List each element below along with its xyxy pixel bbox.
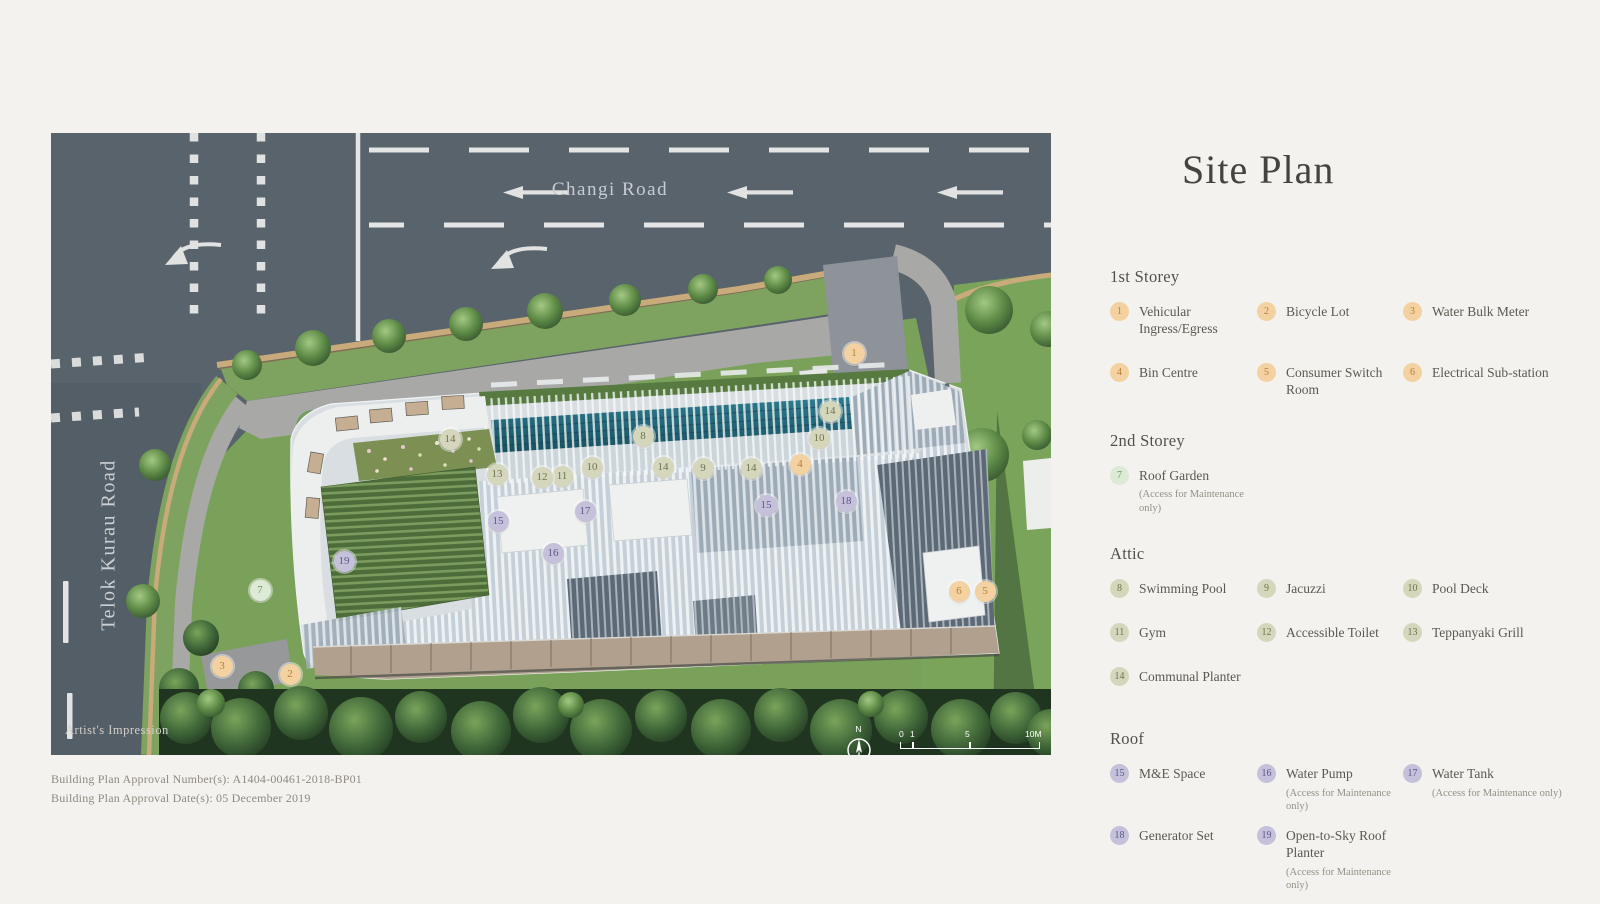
legend-item-label: Communal Planter — [1139, 667, 1241, 686]
legend-item-label: Swimming Pool — [1139, 579, 1226, 598]
plan-marker-11: 11 — [552, 466, 573, 487]
legend-section-1st-storey: 1st Storey1Vehicular Ingress/Egress2Bicy… — [1110, 267, 1585, 399]
legend-item-label: Jacuzzi — [1286, 579, 1326, 598]
legend-item-15: 15M&E Space — [1110, 764, 1257, 783]
legend-marker-7: 7 — [1110, 466, 1129, 485]
legend-item-label: Gym — [1139, 623, 1166, 642]
site-plan-page: 123456789101011121314141414151516171819 … — [0, 0, 1600, 904]
plan-marker-3: 3 — [212, 656, 233, 677]
plan-marker-5: 5 — [975, 581, 996, 602]
legend-marker-12: 12 — [1257, 623, 1276, 642]
legend-item-5: 5Consumer Switch Room — [1257, 363, 1403, 399]
site-plan-rendering: 123456789101011121314141414151516171819 … — [51, 133, 1051, 755]
legend-marker-11: 11 — [1110, 623, 1129, 642]
approval-number: Building Plan Approval Number(s): A1404-… — [51, 770, 362, 789]
plan-marker-18: 18 — [836, 491, 857, 512]
north-compass-icon: N — [845, 719, 873, 755]
plan-marker-4: 4 — [790, 454, 811, 475]
plan-marker-13: 13 — [487, 464, 508, 485]
plan-marker-9: 9 — [693, 458, 714, 479]
scale-bar: 0 1 5 10M — [899, 729, 1049, 753]
legend-panel: Site Plan 1st Storey1Vehicular Ingress/E… — [1110, 146, 1585, 892]
plan-marker-16: 16 — [543, 543, 564, 564]
legend-item-label: Bicycle Lot — [1286, 302, 1349, 321]
legend-item-label: Water Tank(Access for Maintenance only) — [1432, 764, 1562, 800]
legend-item-1: 1Vehicular Ingress/Egress — [1110, 302, 1257, 338]
plan-marker-15: 15 — [488, 511, 509, 532]
legend-marker-15: 15 — [1110, 764, 1129, 783]
legend-marker-3: 3 — [1403, 302, 1422, 321]
legend-section-title: 1st Storey — [1110, 267, 1585, 287]
plan-marker-17: 17 — [575, 501, 596, 522]
plan-marker-14: 14 — [820, 401, 841, 422]
legend-item-label: Consumer Switch Room — [1286, 363, 1403, 399]
legend-marker-9: 9 — [1257, 579, 1276, 598]
legend-item-3: 3Water Bulk Meter — [1403, 302, 1585, 321]
plan-marker-6: 6 — [949, 581, 970, 602]
legend-item-9: 9Jacuzzi — [1257, 579, 1403, 598]
changi-road-label: Changi Road — [552, 179, 668, 201]
legend-item-11: 11Gym — [1110, 623, 1257, 642]
legend-marker-18: 18 — [1110, 826, 1129, 845]
plan-marker-10: 10 — [582, 457, 603, 478]
legend-item-label: Vehicular Ingress/Egress — [1139, 302, 1257, 338]
legend-item-19: 19Open-to-Sky Roof Planter(Access for Ma… — [1257, 826, 1403, 892]
artists-impression-note: Artist's Impression — [65, 723, 169, 738]
plan-marker-15: 15 — [756, 495, 777, 516]
scale-bar-rule — [900, 742, 1040, 749]
legend-marker-1: 1 — [1110, 302, 1129, 321]
legend-item-18: 18Generator Set — [1110, 826, 1257, 845]
compass-north-label: N — [855, 724, 862, 734]
legend-marker-17: 17 — [1403, 764, 1422, 783]
legend-item-note: (Access for Maintenance only) — [1139, 488, 1257, 514]
legend-section-title: 2nd Storey — [1110, 431, 1585, 451]
legend-item-note: (Access for Maintenance only) — [1286, 866, 1403, 892]
legend-item-7: 7Roof Garden(Access for Maintenance only… — [1110, 466, 1257, 515]
compass-needle — [846, 737, 872, 755]
legend-item-13: 13Teppanyaki Grill — [1403, 623, 1585, 642]
legend-marker-6: 6 — [1403, 363, 1422, 382]
legend-item-6: 6Electrical Sub-station — [1403, 363, 1585, 382]
legend-item-17: 17Water Tank(Access for Maintenance only… — [1403, 764, 1585, 800]
legend-marker-13: 13 — [1403, 623, 1422, 642]
page-title: Site Plan — [1182, 146, 1585, 193]
telok-kurau-road-label: Telok Kurau Road — [98, 459, 121, 630]
legend-section-2nd-storey: 2nd Storey7Roof Garden(Access for Mainte… — [1110, 431, 1585, 515]
legend-item-label: Bin Centre — [1139, 363, 1198, 382]
legend-item-16: 16Water Pump(Access for Maintenance only… — [1257, 764, 1403, 813]
legend-item-label: Water Bulk Meter — [1432, 302, 1529, 321]
legend-marker-2: 2 — [1257, 302, 1276, 321]
legend-marker-5: 5 — [1257, 363, 1276, 382]
legend-item-label: Generator Set — [1139, 826, 1214, 845]
legend-sections: 1st Storey1Vehicular Ingress/Egress2Bicy… — [1110, 267, 1585, 892]
legend-section-attic: Attic8Swimming Pool9Jacuzzi10Pool Deck11… — [1110, 544, 1585, 686]
legend-item-2: 2Bicycle Lot — [1257, 302, 1403, 321]
legend-marker-8: 8 — [1110, 579, 1129, 598]
plan-marker-14: 14 — [653, 457, 674, 478]
legend-section-title: Roof — [1110, 729, 1585, 749]
legend-item-14: 14Communal Planter — [1110, 667, 1257, 686]
legend-item-8: 8Swimming Pool — [1110, 579, 1257, 598]
legend-item-label: M&E Space — [1139, 764, 1205, 783]
legend-item-label: Water Pump(Access for Maintenance only) — [1286, 764, 1403, 813]
plan-marker-14: 14 — [741, 458, 762, 479]
legend-marker-16: 16 — [1257, 764, 1276, 783]
approval-notes: Building Plan Approval Number(s): A1404-… — [51, 770, 362, 807]
plan-marker-14: 14 — [440, 429, 461, 450]
plan-marker-8: 8 — [633, 426, 654, 447]
legend-item-4: 4Bin Centre — [1110, 363, 1257, 382]
legend-item-label: Roof Garden(Access for Maintenance only) — [1139, 466, 1257, 515]
plan-marker-layer: 123456789101011121314141414151516171819 — [51, 133, 1051, 755]
legend-item-label: Teppanyaki Grill — [1432, 623, 1524, 642]
plan-marker-7: 7 — [250, 580, 271, 601]
legend-item-12: 12Accessible Toilet — [1257, 623, 1403, 642]
legend-marker-4: 4 — [1110, 363, 1129, 382]
legend-marker-19: 19 — [1257, 826, 1276, 845]
legend-item-label: Electrical Sub-station — [1432, 363, 1549, 382]
plan-marker-1: 1 — [844, 343, 865, 364]
plan-marker-19: 19 — [334, 551, 355, 572]
plan-marker-10: 10 — [809, 428, 830, 449]
legend-section-roof: Roof15M&E Space16Water Pump(Access for M… — [1110, 729, 1585, 892]
legend-item-note: (Access for Maintenance only) — [1286, 787, 1403, 813]
legend-item-note: (Access for Maintenance only) — [1432, 787, 1562, 800]
legend-marker-10: 10 — [1403, 579, 1422, 598]
legend-section-title: Attic — [1110, 544, 1585, 564]
scale-label-5: 5 — [965, 729, 970, 739]
legend-item-label: Accessible Toilet — [1286, 623, 1379, 642]
plan-marker-12: 12 — [532, 467, 553, 488]
legend-item-label: Pool Deck — [1432, 579, 1489, 598]
plan-marker-2: 2 — [280, 664, 301, 685]
approval-date: Building Plan Approval Date(s): 05 Decem… — [51, 789, 362, 808]
scale-label-10: 10M — [1025, 729, 1042, 739]
legend-marker-14: 14 — [1110, 667, 1129, 686]
legend-item-label: Open-to-Sky Roof Planter(Access for Main… — [1286, 826, 1403, 892]
scale-label-1: 1 — [910, 729, 915, 739]
legend-item-10: 10Pool Deck — [1403, 579, 1585, 598]
scale-label-0: 0 — [899, 729, 904, 739]
